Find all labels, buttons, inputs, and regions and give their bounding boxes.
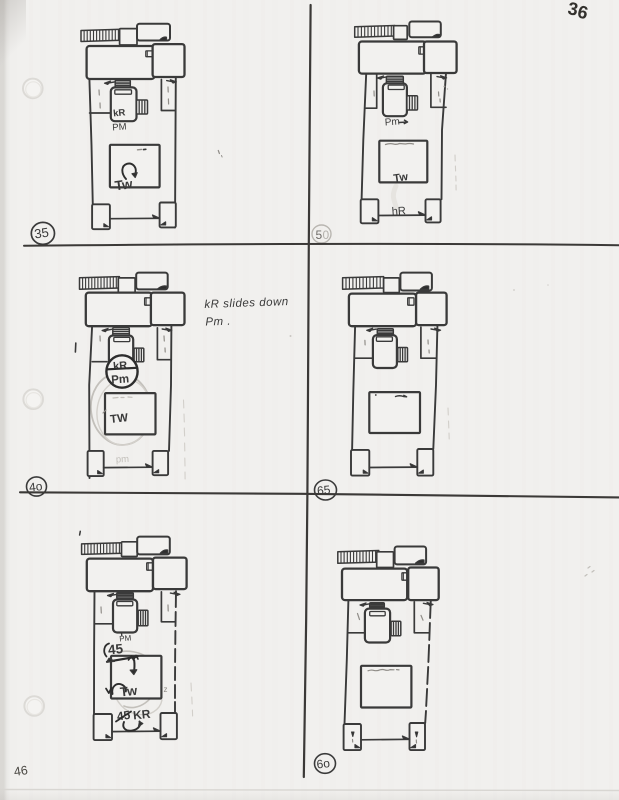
svg-text:PM: PM bbox=[112, 122, 127, 134]
svg-text:pm: pm bbox=[116, 454, 130, 466]
svg-text:5: 5 bbox=[316, 228, 323, 242]
svg-text:Tw: Tw bbox=[119, 683, 138, 700]
svg-text:Pm .: Pm . bbox=[205, 316, 231, 329]
svg-text:TW: TW bbox=[110, 412, 129, 426]
svg-text:KR: KR bbox=[132, 707, 151, 723]
svg-text:kR: kR bbox=[113, 107, 126, 119]
svg-text:Tw: Tw bbox=[114, 176, 134, 193]
svg-text:kR: kR bbox=[113, 360, 128, 373]
svg-text:hR: hR bbox=[391, 205, 406, 218]
svg-text:Pm: Pm bbox=[111, 373, 130, 386]
svg-text:Tw: Tw bbox=[393, 171, 409, 185]
svg-text:0: 0 bbox=[323, 228, 330, 242]
svg-text:Pm: Pm bbox=[384, 116, 400, 128]
svg-text:46: 46 bbox=[13, 763, 29, 779]
svg-text:z: z bbox=[164, 685, 168, 694]
svg-text:kR slides down: kR slides down bbox=[204, 296, 289, 311]
svg-text:6o: 6o bbox=[316, 756, 331, 771]
svg-text:65: 65 bbox=[316, 483, 331, 498]
svg-text:35: 35 bbox=[33, 225, 49, 242]
